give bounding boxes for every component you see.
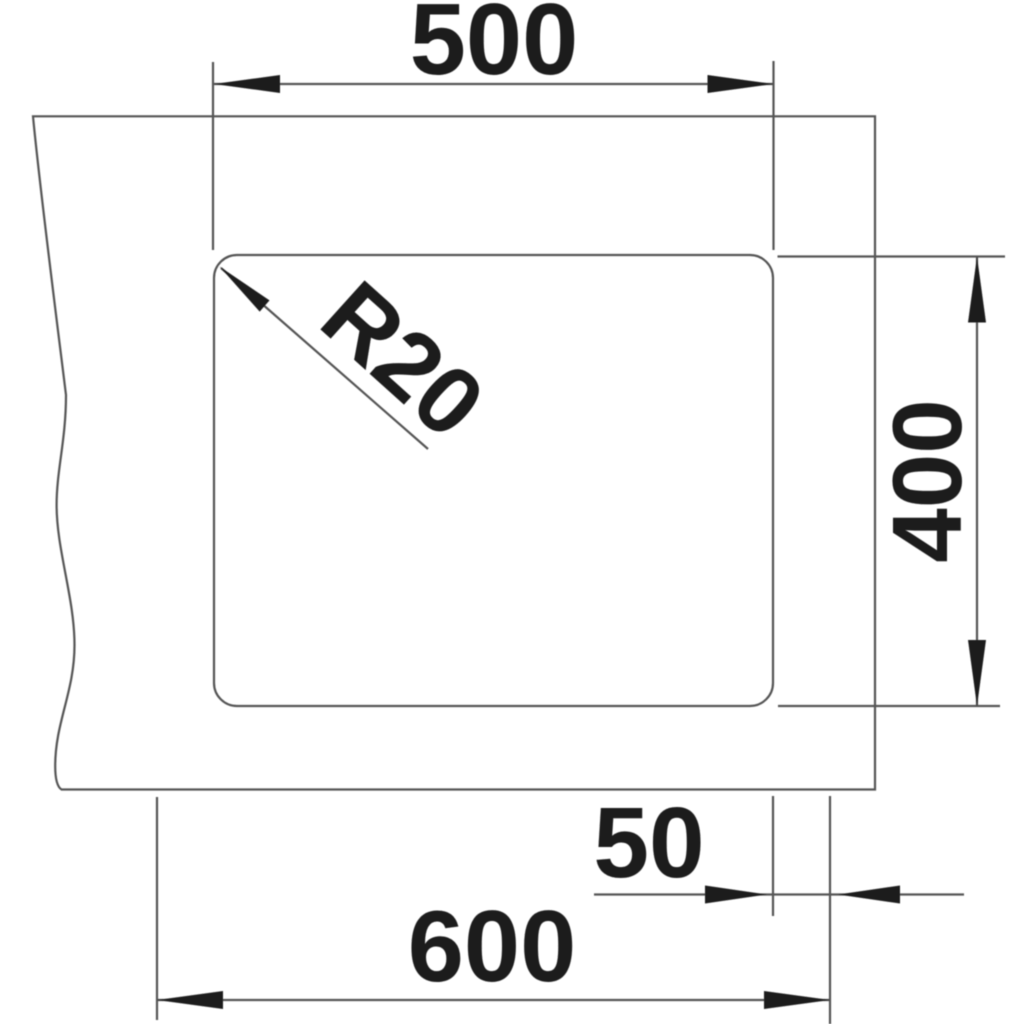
svg-text:400: 400 xyxy=(872,399,982,563)
svg-text:500: 500 xyxy=(410,0,579,96)
svg-text:50: 50 xyxy=(593,787,704,899)
svg-text:600: 600 xyxy=(408,891,577,1003)
